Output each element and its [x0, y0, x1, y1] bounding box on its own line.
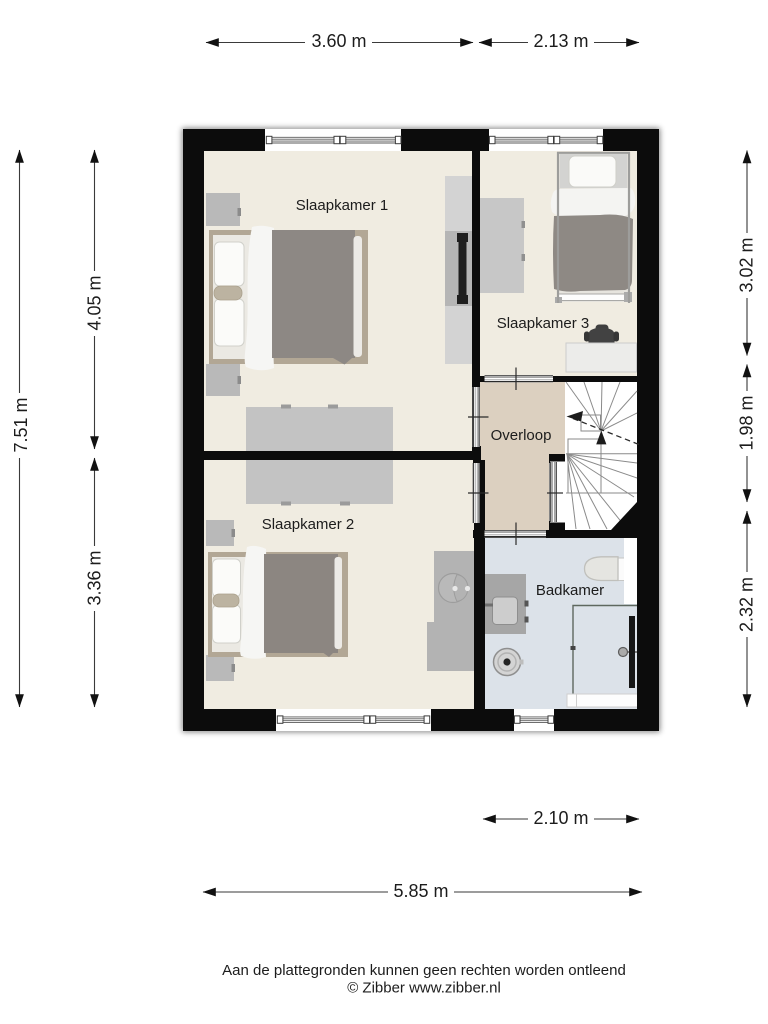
- svg-text:2.32 m: 2.32 m: [737, 577, 757, 632]
- svg-text:2.10 m: 2.10 m: [533, 808, 588, 828]
- svg-text:Aan de plattegronden kunnen ge: Aan de plattegronden kunnen geen rechten…: [222, 962, 626, 979]
- svg-text:5.85 m: 5.85 m: [393, 881, 448, 901]
- svg-text:Badkamer: Badkamer: [536, 582, 604, 599]
- svg-text:3.36 m: 3.36 m: [85, 550, 105, 605]
- svg-text:Slaapkamer 3: Slaapkamer 3: [497, 315, 590, 332]
- svg-text:3.60 m: 3.60 m: [311, 31, 366, 51]
- svg-text:1.98 m: 1.98 m: [737, 395, 757, 450]
- svg-text:© Zibber www.zibber.nl: © Zibber www.zibber.nl: [347, 980, 501, 997]
- svg-text:Slaapkamer 2: Slaapkamer 2: [262, 516, 355, 533]
- svg-text:7.51 m: 7.51 m: [11, 397, 31, 452]
- svg-text:3.02 m: 3.02 m: [737, 237, 757, 292]
- svg-text:4.05 m: 4.05 m: [85, 275, 105, 330]
- svg-text:2.13 m: 2.13 m: [533, 31, 588, 51]
- svg-text:Slaapkamer 1: Slaapkamer 1: [296, 197, 389, 214]
- svg-text:Overloop: Overloop: [491, 427, 552, 444]
